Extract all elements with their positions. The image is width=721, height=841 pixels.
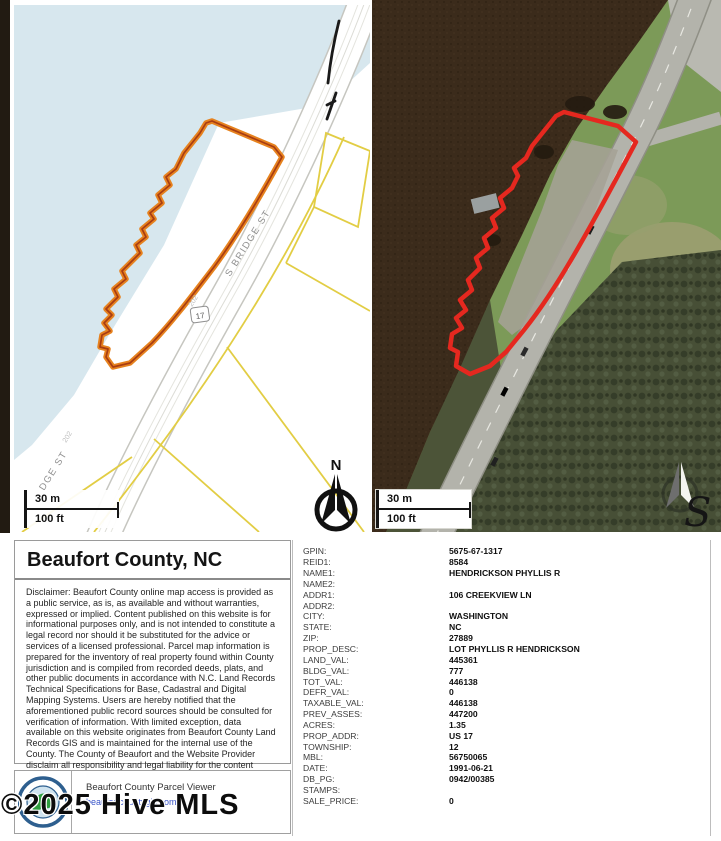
attribute-value: 5675-67-1317 [449,546,503,556]
attribute-value: US 17 [449,731,473,741]
scale-bar: 30 m 100 ft [376,490,471,528]
attribute-label: ZIP: [293,633,449,643]
attribute-label: DB_PG: [293,774,449,784]
attribute-value: 445361 [449,655,478,665]
parcel-map: S BRIDGE ST DGE ST 202 202 17 N [14,5,370,532]
attribute-value: 56750065 [449,752,487,762]
watermark-signature: S [684,490,711,536]
attribute-value: 1991-06-21 [449,763,493,773]
attribute-value: WASHINGTON [449,611,508,621]
attribute-value: 12 [449,742,459,752]
attribute-row: MBL: 56750065 [293,752,710,763]
attribute-value: NC [449,622,461,632]
attribute-row: GPIN: 5675-67-1317 [293,546,710,557]
attribute-label: PROP_DESC: [293,644,449,654]
attribute-value: 0 [449,796,454,806]
aerial-map-canvas [372,0,721,532]
attribute-row: ACRES: 1.35 [293,720,710,731]
attribute-label: NAME1: [293,568,449,578]
attribute-row: ZIP: 27889 [293,633,710,644]
disclaimer-text: Disclaimer: Beaufort County online map a… [15,580,290,788]
scale-meters-label: 30 m [27,490,119,508]
scale-meters-label: 30 m [379,490,471,508]
attribute-value: 106 CREEKVIEW LN [449,590,532,600]
attribute-row: DB_PG: 0942/00385 [293,774,710,785]
attribute-row: PROP_DESC: LOT PHYLLIS R HENDRICKSON [293,644,710,655]
attribute-label: BLDG_VAL: [293,666,449,676]
scale-bar-line [379,508,471,510]
attribute-value: 0 [449,687,454,697]
attribute-row: STATE: NC [293,622,710,633]
attribute-row: DEFR_VAL: 0 [293,687,710,698]
attribute-label: ADDR1: [293,590,449,600]
attribute-row: BLDG_VAL: 777 [293,665,710,676]
attribute-label: TOT_VAL: [293,677,449,687]
attribute-label: GPIN: [293,546,449,556]
parcel-report-page: S BRIDGE ST DGE ST 202 202 17 N [0,0,721,841]
road-frontage-label-2: 202 [62,430,74,444]
attribute-row: LAND_VAL: 445361 [293,654,710,665]
attribute-row: TAXABLE_VAL: 446138 [293,698,710,709]
aerial-map [372,0,721,532]
attribute-value: 8584 [449,557,468,567]
attribute-label: LAND_VAL: [293,655,449,665]
attribute-row: NAME2: [293,579,710,590]
attribute-label: MBL: [293,752,449,762]
attribute-label: TAXABLE_VAL: [293,698,449,708]
attribute-row: SALE_PRICE: 0 [293,795,710,806]
attribute-row: CITY: WASHINGTON [293,611,710,622]
attribute-row: TOWNSHIP: 12 [293,741,710,752]
scale-feet-label: 100 ft [379,510,471,528]
attribute-label: CITY: [293,611,449,621]
attribute-label: SALE_PRICE: [293,796,449,806]
attribute-label: DEFR_VAL: [293,687,449,697]
attribute-label: NAME2: [293,579,449,589]
attribute-label: TOWNSHIP: [293,742,449,752]
attribute-row: STAMPS: [293,785,710,796]
attribute-label: STATE: [293,622,449,632]
attribute-value: HENDRICKSON PHYLLIS R [449,568,560,578]
scale-feet-label: 100 ft [27,510,119,528]
attribute-value: 777 [449,666,463,676]
attribute-label: PREV_ASSES: [293,709,449,719]
attribute-row: ADDR2: [293,600,710,611]
attribute-row: NAME1: HENDRICKSON PHYLLIS R [293,568,710,579]
page-title: Beaufort County, NC [15,541,290,580]
scale-bar: 30 m 100 ft [24,490,119,528]
attribute-label: STAMPS: [293,785,449,795]
attribute-value: 0942/00385 [449,774,494,784]
scan-edge-shadow [0,0,10,533]
north-arrow-icon: N [317,457,355,529]
attribute-value: 446138 [449,698,478,708]
attribute-value: 27889 [449,633,473,643]
attribute-value: 446138 [449,677,478,687]
county-info-box: Beaufort County, NC Disclaimer: Beaufort… [14,540,291,764]
scale-bar-line [27,508,119,510]
attribute-row: PROP_ADDR: US 17 [293,730,710,741]
attribute-row: REID1: 8584 [293,557,710,568]
attribute-row: PREV_ASSES: 447200 [293,709,710,720]
attribute-value: LOT PHYLLIS R HENDRICKSON [449,644,580,654]
attribute-value: 1.35 [449,720,466,730]
svg-text:17: 17 [195,311,206,321]
attribute-label: DATE: [293,763,449,773]
attribute-label: PROP_ADDR: [293,731,449,741]
attribute-label: REID1: [293,557,449,567]
attribute-label: ADDR2: [293,601,449,611]
parcel-attributes-panel: GPIN: 5675-67-1317 REID1: 8584 NAME1: HE… [292,540,711,836]
attribute-row: DATE: 1991-06-21 [293,763,710,774]
attribute-label: ACRES: [293,720,449,730]
mls-watermark: ©2025 Hive MLS [1,789,239,822]
route-17-shield: 17 [190,306,210,323]
attribute-row: TOT_VAL: 446138 [293,676,710,687]
street-label-dge-st: DGE ST [37,449,70,492]
attribute-value: 447200 [449,709,478,719]
parcel-map-canvas: S BRIDGE ST DGE ST 202 202 17 N [14,5,370,532]
attribute-row: ADDR1: 106 CREEKVIEW LN [293,589,710,600]
svg-text:N: N [331,457,342,474]
